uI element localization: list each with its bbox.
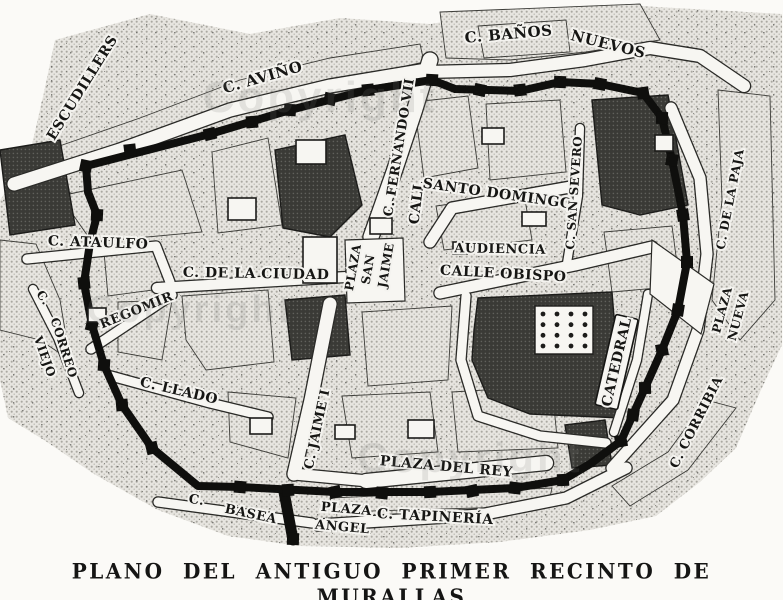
wall-tower xyxy=(287,533,299,545)
building xyxy=(228,198,256,220)
wall-tower xyxy=(554,76,566,88)
wall-tower xyxy=(77,276,90,289)
wall-tower xyxy=(508,481,521,494)
wall-tower xyxy=(91,209,104,222)
wall-tower xyxy=(676,208,690,222)
wall-tower xyxy=(626,408,640,422)
wall-tower xyxy=(513,83,526,96)
wall-tower xyxy=(115,398,128,411)
wall-tower xyxy=(636,86,650,100)
building xyxy=(522,212,546,226)
wall-tower xyxy=(614,434,628,448)
wall-tower xyxy=(123,143,136,156)
wall-tower xyxy=(655,343,669,357)
wall-tower xyxy=(79,159,93,173)
watermark-text: Copyright xyxy=(357,434,582,481)
wall-tower xyxy=(665,153,679,167)
wall-tower xyxy=(98,359,111,372)
building xyxy=(250,418,272,434)
wall-tower xyxy=(671,303,685,317)
building xyxy=(296,140,326,164)
watermark-text: Copyright xyxy=(203,73,438,122)
wall-tower xyxy=(465,484,479,498)
wall-tower xyxy=(424,486,437,499)
map-canvas: ESCUDILLERSC. AVIÑOC. BAÑOSNUEVOSC. FERN… xyxy=(0,0,783,600)
building xyxy=(655,135,673,151)
building xyxy=(335,425,355,439)
wall-tower xyxy=(639,382,651,394)
city-block xyxy=(362,306,452,386)
wall-tower xyxy=(375,486,388,499)
wall-tower xyxy=(593,77,607,91)
wall-tower xyxy=(681,256,693,268)
map-caption: PLANO DEL ANTIGUO PRIMER RECINTO DE MURA… xyxy=(0,559,783,600)
building xyxy=(482,128,504,144)
scanned-map-page: ESCUDILLERSC. AVIÑOC. BAÑOSNUEVOSC. FERN… xyxy=(0,0,783,600)
wall-tower xyxy=(473,83,487,97)
map-label-audiencia: AUDIENCIA xyxy=(453,241,546,258)
wall-tower xyxy=(656,112,668,124)
map-label-ciudad: C. DE LA CIUDAD xyxy=(183,265,330,284)
wall-tower xyxy=(282,484,295,497)
wall-tower xyxy=(233,480,246,493)
building xyxy=(370,218,392,234)
map-label-basea-c: C. xyxy=(188,492,206,509)
watermark-text: Copyright xyxy=(87,289,293,331)
